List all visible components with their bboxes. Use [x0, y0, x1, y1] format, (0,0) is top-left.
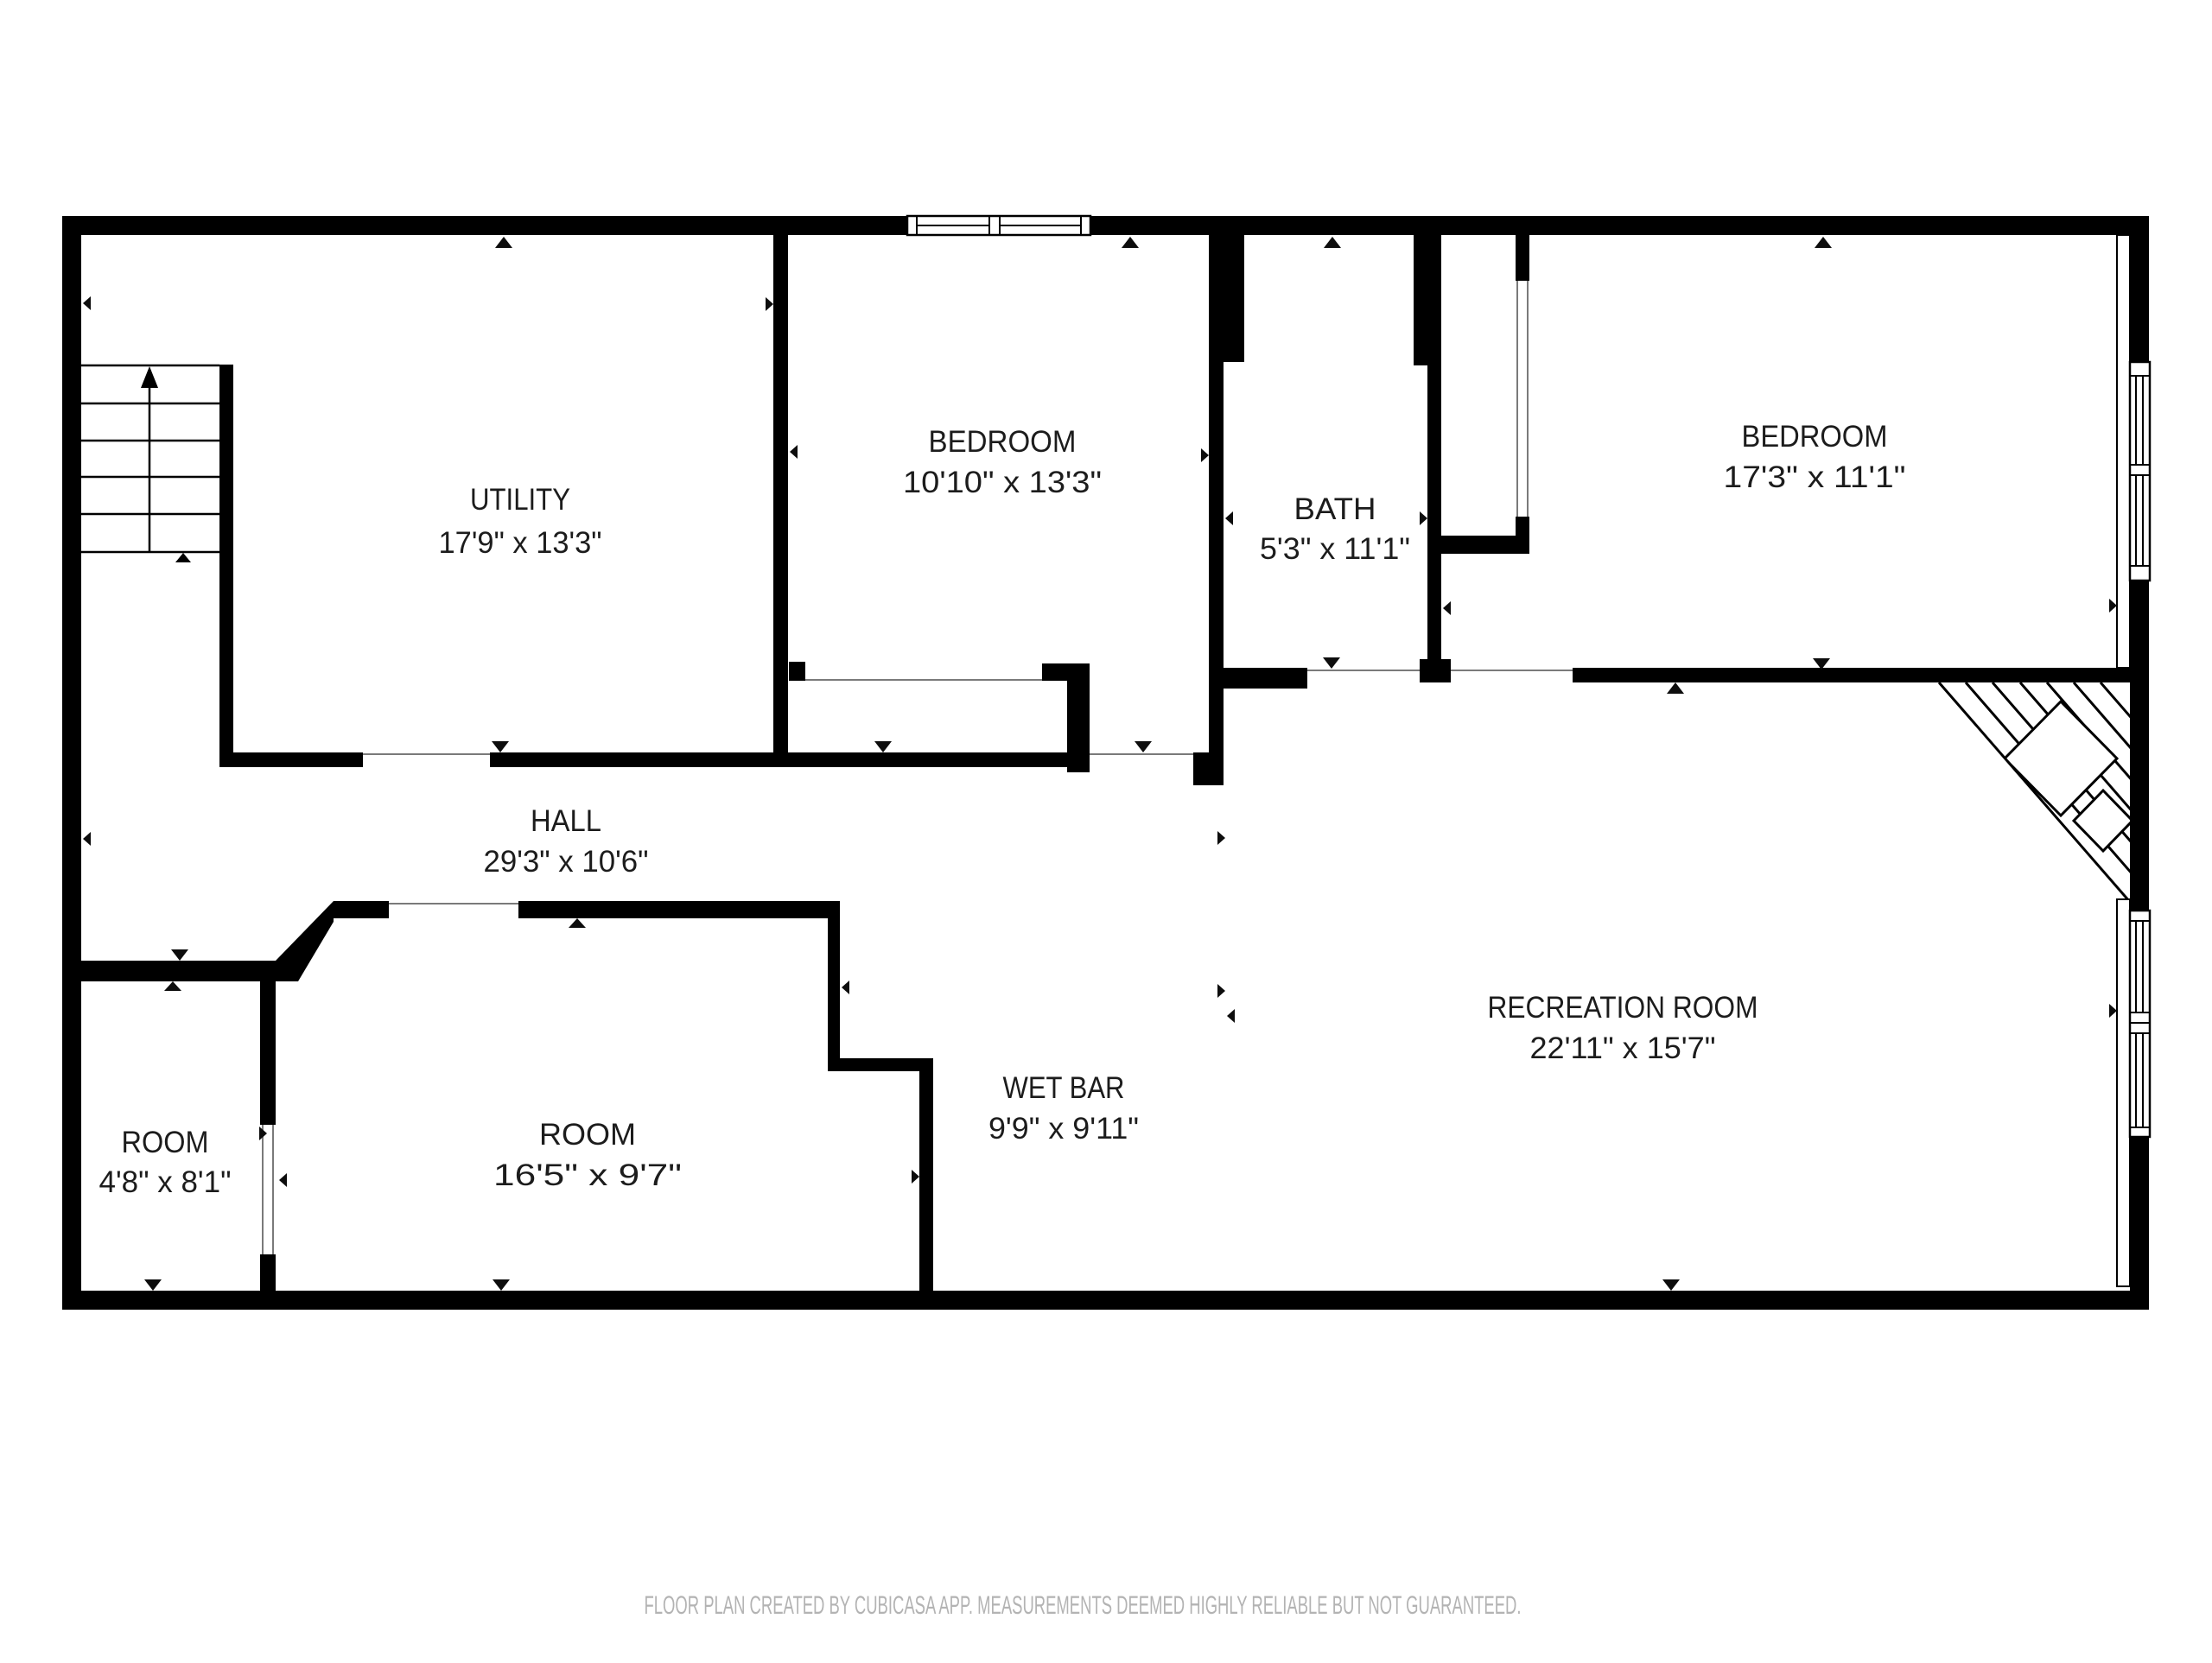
- svg-text:10'10" x 13'3": 10'10" x 13'3": [903, 466, 1102, 499]
- svg-text:5'3" x 11'1": 5'3" x 11'1": [1260, 532, 1410, 566]
- svg-text:17'3" x 11'1": 17'3" x 11'1": [1724, 460, 1906, 494]
- svg-text:HALL: HALL: [531, 804, 601, 838]
- svg-text:WET BAR: WET BAR: [1003, 1071, 1125, 1105]
- svg-text:BEDROOM: BEDROOM: [929, 425, 1077, 459]
- svg-text:16'5" x 9'7": 16'5" x 9'7": [493, 1158, 682, 1192]
- svg-text:ROOM: ROOM: [122, 1126, 209, 1159]
- svg-text:BATH: BATH: [1294, 492, 1376, 526]
- svg-text:UTILITY: UTILITY: [470, 483, 570, 517]
- svg-text:BEDROOM: BEDROOM: [1742, 420, 1888, 454]
- svg-text:22'11" x 15'7": 22'11" x 15'7": [1530, 1031, 1716, 1065]
- svg-text:29'3" x 10'6": 29'3" x 10'6": [484, 845, 649, 879]
- svg-text:4'8" x 8'1": 4'8" x 8'1": [99, 1165, 232, 1199]
- svg-text:9'9" x 9'11": 9'9" x 9'11": [988, 1112, 1139, 1146]
- svg-text:ROOM: ROOM: [539, 1118, 636, 1152]
- svg-text:RECREATION ROOM: RECREATION ROOM: [1488, 991, 1758, 1025]
- svg-text:FLOOR PLAN CREATED BY CUBICASA: FLOOR PLAN CREATED BY CUBICASA APP. MEAS…: [645, 1591, 1522, 1620]
- svg-text:17'9" x 13'3": 17'9" x 13'3": [439, 526, 602, 560]
